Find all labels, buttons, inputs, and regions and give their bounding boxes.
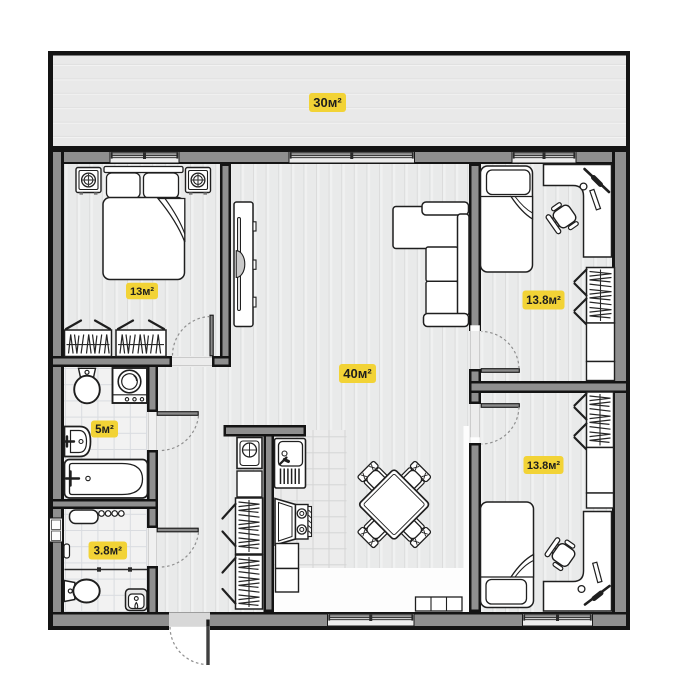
svg-text:30м²: 30м² [313,95,342,110]
svg-text:40м²: 40м² [343,366,372,381]
svg-text:13.8м²: 13.8м² [527,460,561,472]
svg-text:13м²: 13м² [130,286,154,298]
svg-text:3.8м²: 3.8м² [94,546,122,558]
svg-text:5м²: 5м² [95,424,114,436]
svg-text:13.8м²: 13.8м² [526,295,561,307]
